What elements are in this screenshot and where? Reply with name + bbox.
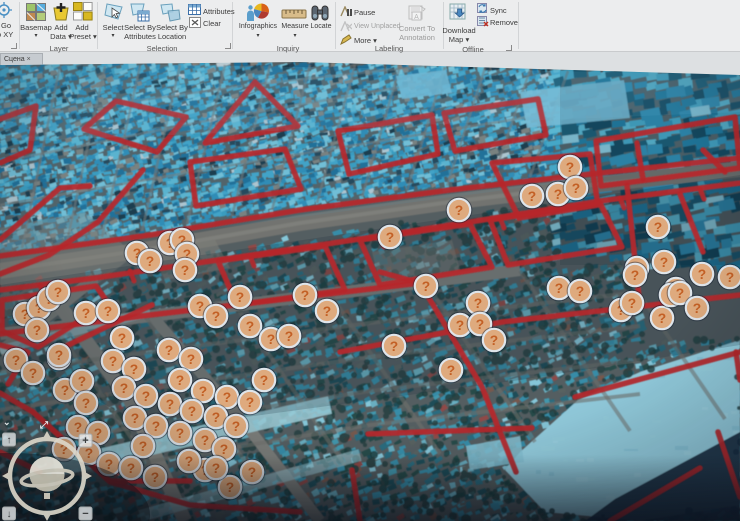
svg-text:⤢: ⤢ [40,420,48,431]
svg-text:↓: ↓ [7,509,12,520]
svg-text:↑: ↑ [7,435,12,446]
svg-text:⌄: ⌄ [3,417,11,427]
svg-text:A: A [414,14,419,21]
svg-text:+: + [82,435,88,447]
svg-text:−: − [82,508,88,520]
